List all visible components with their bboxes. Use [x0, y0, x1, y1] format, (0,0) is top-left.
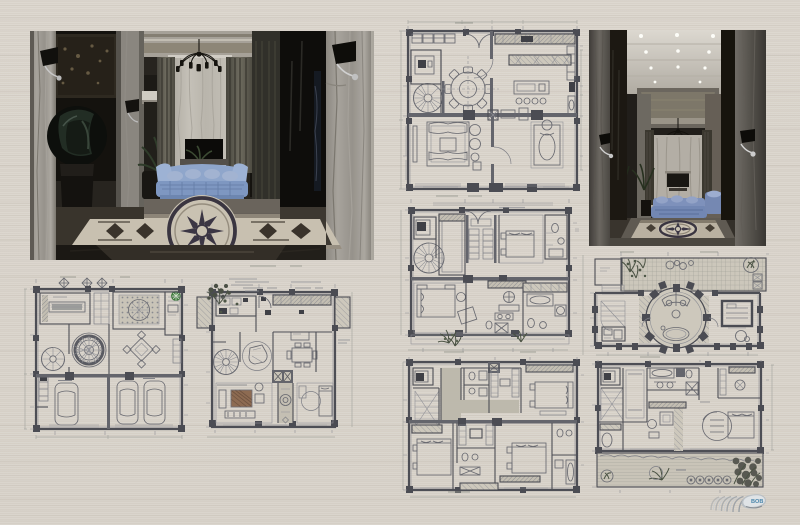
svg-text:BOB: BOB [751, 499, 763, 505]
